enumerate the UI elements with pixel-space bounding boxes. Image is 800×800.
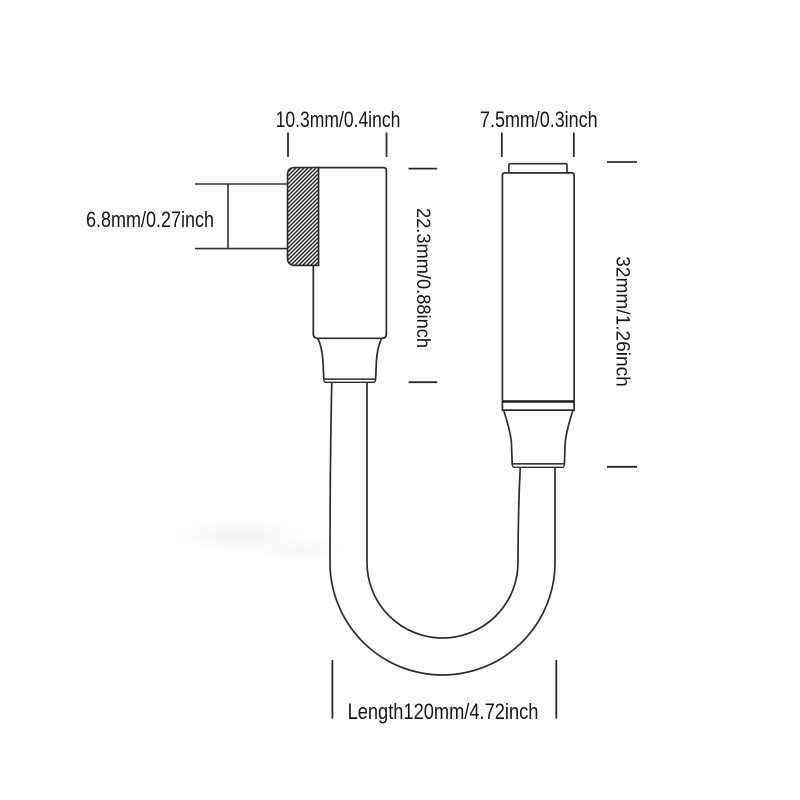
svg-text:32mm/1.26inch: 32mm/1.26inch — [612, 256, 633, 387]
svg-text:7.5mm/0.3inch: 7.5mm/0.3inch — [480, 107, 598, 132]
svg-text:6.8mm/0.27inch: 6.8mm/0.27inch — [86, 207, 214, 232]
svg-text:22.3mm/0.88inch: 22.3mm/0.88inch — [412, 208, 433, 348]
svg-text:10.3mm/0.4inch: 10.3mm/0.4inch — [276, 107, 401, 132]
svg-text:Length120mm/4.72inch: Length120mm/4.72inch — [348, 699, 539, 724]
